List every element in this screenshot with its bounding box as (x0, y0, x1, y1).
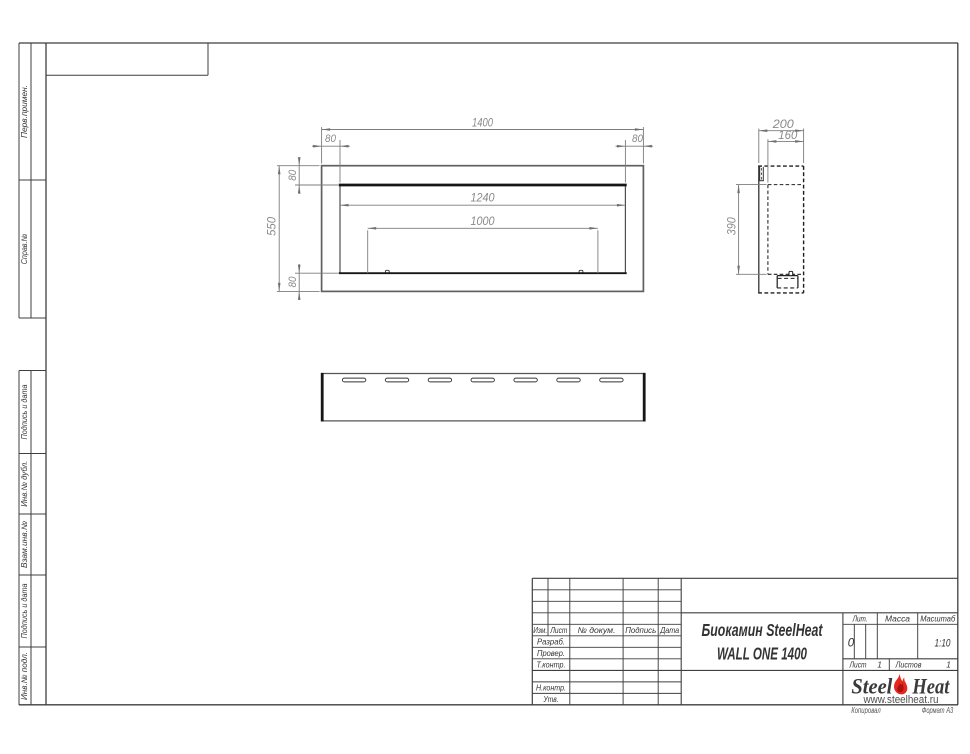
svg-text:Взам.инв.№: Взам.инв.№ (20, 521, 29, 568)
svg-text:Перв.примен.: Перв.примен. (20, 85, 29, 138)
svg-text:Т.контр.: Т.контр. (537, 660, 566, 670)
svg-text:1:10: 1:10 (935, 637, 952, 649)
svg-text:550: 550 (264, 217, 278, 236)
svg-text:www.steelheat.ru: www.steelheat.ru (863, 694, 939, 706)
svg-text:1: 1 (877, 660, 882, 670)
svg-text:Н.контр.: Н.контр. (536, 683, 566, 693)
svg-text:Дата: Дата (659, 625, 679, 635)
svg-text:Разраб.: Разраб. (537, 637, 565, 647)
svg-text:390: 390 (724, 217, 738, 235)
svg-text:Справ.№: Справ.№ (20, 233, 29, 264)
svg-text:80: 80 (287, 169, 299, 181)
svg-text:Масса: Масса (885, 614, 910, 624)
svg-text:Провер.: Провер. (537, 648, 565, 658)
svg-text:80: 80 (325, 133, 337, 145)
svg-text:Листов: Листов (895, 660, 922, 670)
svg-text:Инв.№ дубл.: Инв.№ дубл. (20, 461, 29, 507)
svg-text:Масштаб: Масштаб (920, 614, 955, 624)
svg-text:Подпись и дата: Подпись и дата (20, 583, 29, 639)
svg-text:№ докум.: № докум. (578, 625, 616, 635)
svg-text:WALL ONE 1400: WALL ONE 1400 (717, 644, 807, 664)
svg-text:Подпись: Подпись (625, 625, 656, 635)
svg-text:0: 0 (848, 637, 855, 649)
svg-text:80: 80 (287, 276, 299, 288)
svg-text:Изм.: Изм. (533, 625, 547, 635)
svg-text:1000: 1000 (471, 214, 495, 228)
svg-text:Формат А3: Формат А3 (922, 706, 954, 715)
svg-text:1240: 1240 (471, 191, 495, 205)
svg-text:Инв.№ подл.: Инв.№ подл. (20, 652, 29, 700)
svg-text:Лист: Лист (550, 625, 568, 635)
svg-text:Копировал: Копировал (851, 706, 881, 715)
svg-text:Подпись и дата: Подпись и дата (20, 384, 29, 440)
svg-text:1400: 1400 (472, 116, 493, 130)
svg-text:160: 160 (778, 128, 797, 142)
svg-text:Утв.: Утв. (543, 694, 559, 704)
svg-text:Лит.: Лит. (852, 614, 868, 624)
svg-text:Биокамин SteelHeat: Биокамин SteelHeat (702, 620, 824, 640)
svg-text:Лист: Лист (849, 660, 867, 670)
svg-text:1: 1 (946, 660, 951, 670)
svg-text:80: 80 (632, 133, 644, 145)
